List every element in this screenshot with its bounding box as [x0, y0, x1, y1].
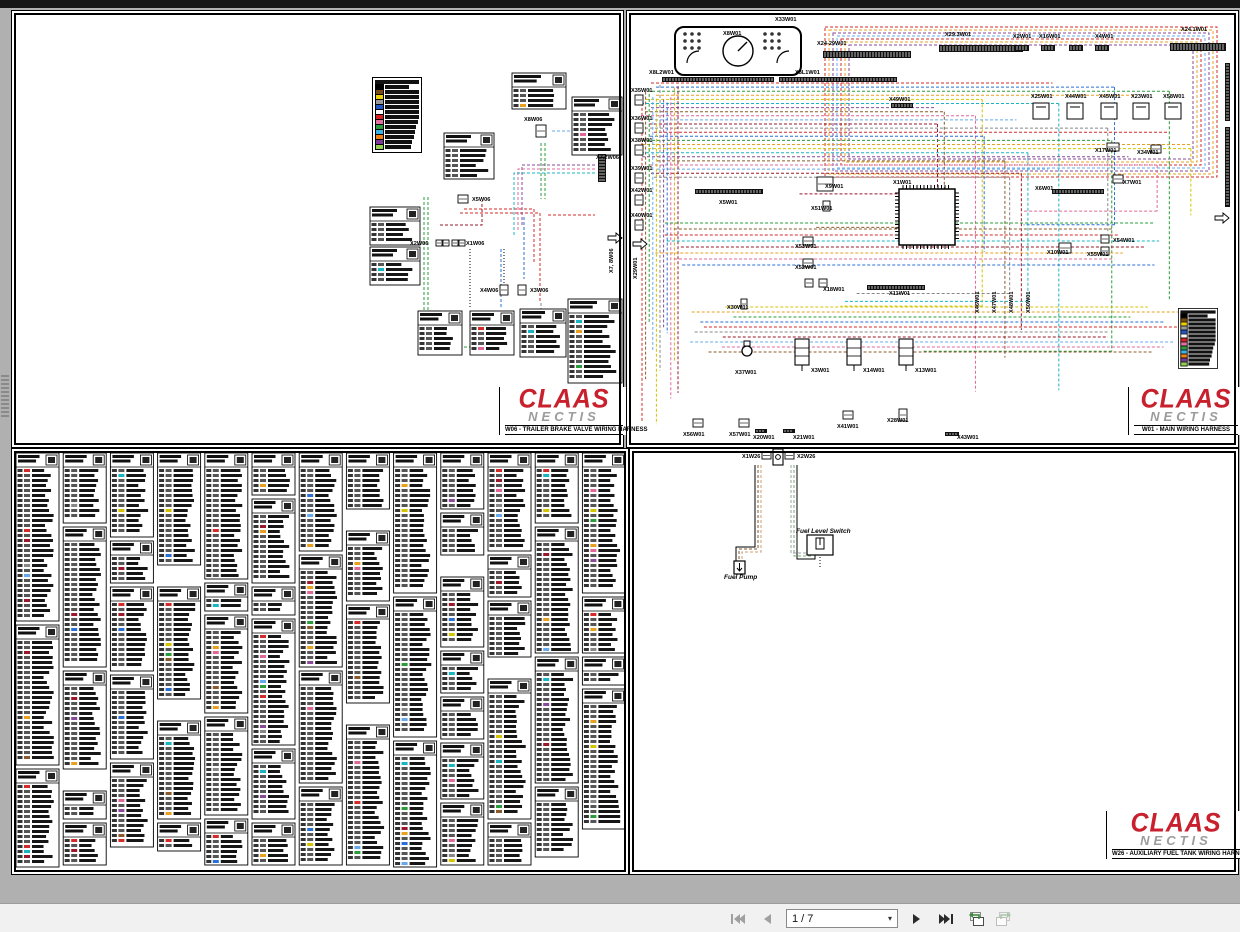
claas-logo: CLAAS	[1112, 812, 1240, 835]
legend-color-name-bar	[1188, 347, 1213, 350]
legend-color-name-bar	[385, 145, 411, 149]
page-number-display: 1 / 7	[787, 913, 883, 925]
connector-label: X46W01	[975, 292, 981, 313]
legend-row	[375, 145, 419, 149]
connector-label: X1W26	[742, 454, 760, 460]
page-w26-aux-fuel-tank: X1W26X2W26Fuel PumpFuel Level Switch CLA…	[629, 448, 1239, 875]
connector-label: X3W06	[530, 288, 548, 294]
connector-label: X36W01	[631, 116, 652, 122]
next-page-icon	[911, 912, 923, 926]
connector-label: X43W01	[957, 435, 978, 441]
page-title-w26: W26 - AUXILIARY FUEL TANK WIRING HARNESS	[1112, 849, 1240, 859]
connector-label: X4W06	[480, 288, 498, 294]
page-title-w06: W06 - TRAILER BRAKE VALVE WIRING HARNESS	[505, 425, 623, 435]
connector-label: X1W01	[893, 180, 911, 186]
legend-color-name-bar	[385, 135, 414, 139]
legend-color-name-bar	[1188, 335, 1215, 338]
connector-label: X7.2W06	[596, 155, 619, 161]
legend-color-name-bar	[1188, 343, 1214, 346]
connector-label: X35W01	[631, 88, 652, 94]
connector-label: X8W01	[723, 31, 741, 37]
first-page-icon	[730, 912, 746, 926]
legend-color-name-bar	[1188, 327, 1215, 330]
next-view-icon	[995, 911, 1014, 927]
connector-label: X29W01	[633, 258, 639, 279]
page-connector-pinout-tables	[11, 448, 629, 875]
title-block-w26: CLAAS NECTIS W26 - AUXILIARY FUEL TANK W…	[1106, 811, 1240, 859]
connector-label: X23W01	[1131, 94, 1152, 100]
connector-label: X5W01	[719, 200, 737, 206]
connector-label: X51W01	[811, 206, 832, 212]
connector-label: X8W06	[524, 117, 542, 123]
legend-color-name-bar	[1188, 355, 1211, 358]
claas-logo: CLAAS	[1134, 388, 1238, 411]
legend-color-name-bar	[1188, 339, 1215, 342]
connector-label: X54W01	[1113, 238, 1134, 244]
w01-diagram: X33W01X8W01X24-29W01X29.3W01X2W01X16W01X…	[627, 11, 1238, 447]
device-label: Fuel Pump	[724, 574, 757, 581]
connector-label: X58W01	[1163, 94, 1184, 100]
connector-label: X11W01	[889, 291, 910, 297]
window-top-bar	[0, 0, 1240, 8]
connector-label: X24.1W01	[1181, 27, 1207, 33]
connector-label: X2W01	[1013, 34, 1031, 40]
connector-label: X45W01	[1099, 94, 1120, 100]
legend-color-name-bar	[1188, 323, 1215, 326]
legend-color-name-bar	[1188, 363, 1209, 366]
page-w01-main-harness: X33W01X8W01X24-29W01X29.3W01X2W01X16W01X…	[626, 10, 1239, 448]
device-label: Fuel Level Switch	[796, 528, 851, 535]
connector-label: X10W01	[1047, 250, 1068, 256]
page-title-w01: W01 - MAIN WIRING HARNESS	[1134, 425, 1238, 435]
connector-label: X49W01	[889, 97, 910, 103]
last-page-button[interactable]	[936, 909, 956, 929]
legend-color-name-bar	[1188, 359, 1210, 362]
connector-label: X13W01	[915, 368, 936, 374]
connector-label: X3W01	[811, 368, 829, 374]
chevron-down-icon[interactable]: ▾	[883, 914, 897, 923]
legend-color-name-bar	[385, 120, 418, 124]
connector-label: X57W01	[729, 432, 750, 438]
legend-color-name-bar	[1188, 319, 1215, 322]
legend-color-name-bar	[385, 95, 419, 99]
legend-color-swatch	[375, 144, 384, 150]
legend-color-name-bar	[385, 90, 419, 94]
left-margin-marker	[1, 375, 9, 419]
connector-label: X8L2W01	[649, 70, 674, 76]
legend-color-name-bar	[385, 100, 419, 104]
connector-label: X50W01	[1026, 292, 1032, 313]
connector-label: X7, 8W06	[609, 248, 615, 273]
connector-label: X29.3W01	[945, 32, 971, 38]
previous-page-button[interactable]	[757, 909, 777, 929]
w06-diagram: X8W06X7.2W06X5W06X2W06X1W06X4W06X3W06X7,…	[12, 11, 623, 447]
connector-label: X41W01	[837, 424, 858, 430]
connector-label: X25W01	[1031, 94, 1052, 100]
connector-label: X55W01	[1087, 252, 1108, 258]
wire-color-legend	[372, 77, 422, 153]
connector-label: X34W01	[1137, 150, 1158, 156]
connector-label: X8L1W01	[795, 70, 820, 76]
previous-page-icon	[761, 912, 773, 926]
connector-label: X39W01	[631, 166, 652, 172]
connector-label: X24-29W01	[817, 41, 847, 47]
page-w06-trailer-brake-valve: X8W06X7.2W06X5W06X2W06X1W06X4W06X3W06X7,…	[11, 10, 624, 448]
next-view-button[interactable]	[994, 909, 1014, 929]
legend-color-name-bar	[385, 125, 416, 129]
previous-view-icon	[966, 911, 985, 927]
connector-label: X42W01	[631, 188, 652, 194]
connector-label: X38W01	[631, 138, 652, 144]
connector-label: X44W01	[1065, 94, 1086, 100]
legend-row	[1180, 362, 1215, 365]
connector-label: X1W06	[466, 241, 484, 247]
connector-label: X16W01	[1039, 34, 1060, 40]
connector-label: X2W26	[797, 454, 815, 460]
connector-label: X9W01	[825, 184, 843, 190]
claas-logo: CLAAS	[505, 388, 623, 411]
connector-label: X53W01	[795, 244, 816, 250]
wire-color-legend	[1178, 308, 1218, 369]
legend-color-name-bar	[1188, 315, 1207, 318]
connector-label: X17W01	[1095, 148, 1116, 154]
legend-color-name-bar	[385, 140, 412, 144]
connector-label: X7W01	[1123, 180, 1141, 186]
page-select[interactable]: 1 / 7 ▾	[786, 909, 898, 928]
connector-label: X56W01	[683, 432, 704, 438]
connector-label: X6W01	[1035, 186, 1053, 192]
last-page-icon	[938, 912, 954, 926]
connector-label: X40W01	[631, 213, 652, 219]
connector-label: X2W06	[410, 241, 428, 247]
pinout-tables-diagram	[12, 449, 628, 874]
connector-label: X47W01	[992, 292, 998, 313]
title-block-w01: CLAAS NECTIS W01 - MAIN WIRING HARNESS	[1128, 387, 1240, 435]
legend-color-name-bar	[385, 130, 415, 134]
legend-color-name-bar	[385, 85, 409, 89]
connector-label: X21W01	[793, 435, 814, 441]
document-viewport: X8W06X7.2W06X5W06X2W06X1W06X4W06X3W06X7,…	[0, 8, 1240, 903]
legend-color-name-bar	[385, 110, 419, 114]
legend-color-name-bar	[1188, 351, 1212, 354]
next-page-button[interactable]	[907, 909, 927, 929]
connector-label: X48W01	[1009, 292, 1015, 313]
title-block-w06: CLAAS NECTIS W06 - TRAILER BRAKE VALVE W…	[499, 387, 626, 435]
viewer-toolbar: 1 / 7 ▾	[0, 903, 1240, 932]
legend-color-swatch	[1180, 362, 1187, 367]
connector-label: X20W01	[753, 435, 774, 441]
connector-label: X33W01	[775, 17, 796, 23]
connector-label: X5W06	[472, 197, 490, 203]
connector-label: X4W01	[1095, 34, 1113, 40]
connector-label: X14W01	[863, 368, 884, 374]
connector-label: X18W01	[823, 287, 844, 293]
legend-color-name-bar	[385, 115, 419, 119]
connector-label: X37W01	[735, 370, 756, 376]
legend-color-name-bar	[1188, 331, 1215, 334]
connector-label: X52W01	[795, 265, 816, 271]
legend-color-name-bar	[385, 105, 419, 109]
first-page-button[interactable]	[728, 909, 748, 929]
previous-view-button[interactable]	[965, 909, 985, 929]
connector-label: X28W01	[887, 418, 908, 424]
connector-label: X30W01	[727, 305, 748, 311]
